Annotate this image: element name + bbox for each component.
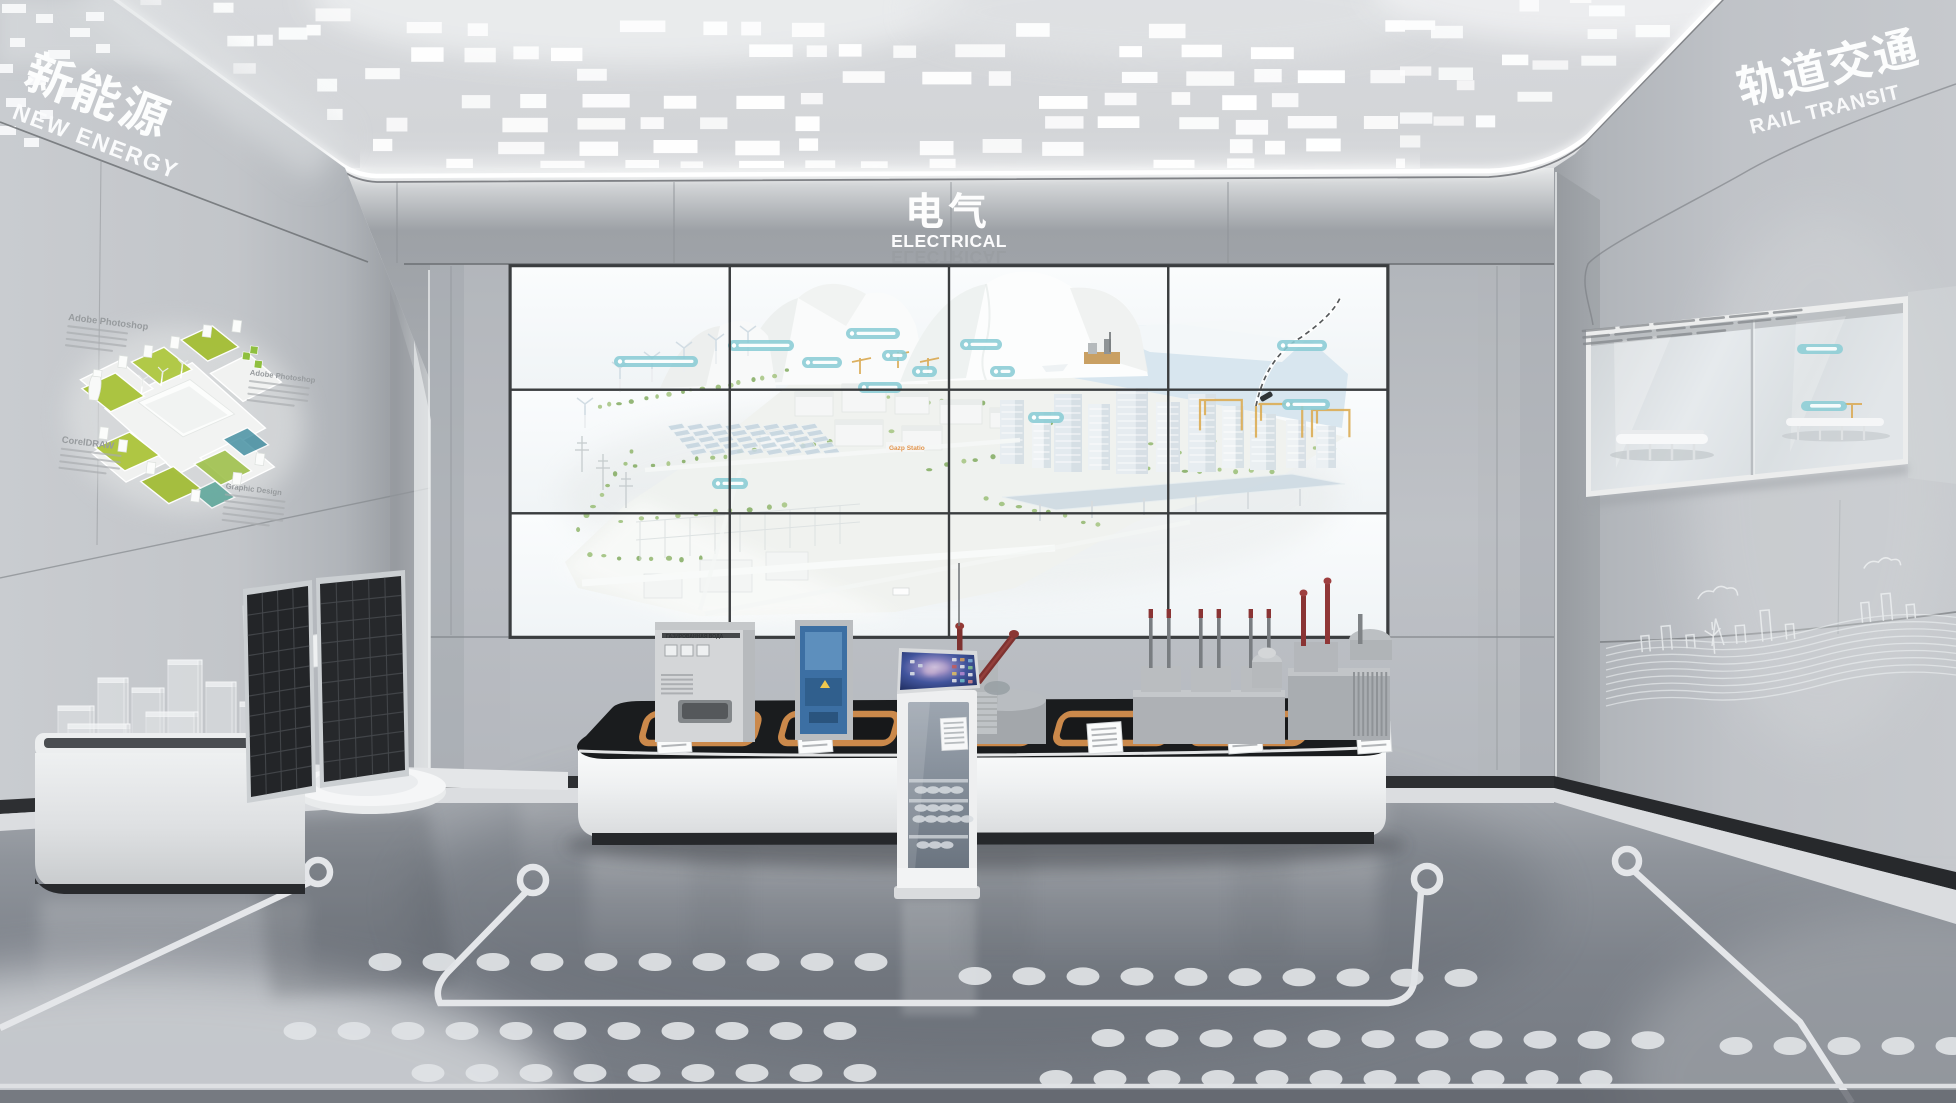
svg-text:Gazp Statio: Gazp Statio [889,445,925,452]
svg-text:ГАЗИРОВАННАЯ ВОДА: ГАЗИРОВАННАЯ ВОДА [666,634,724,640]
